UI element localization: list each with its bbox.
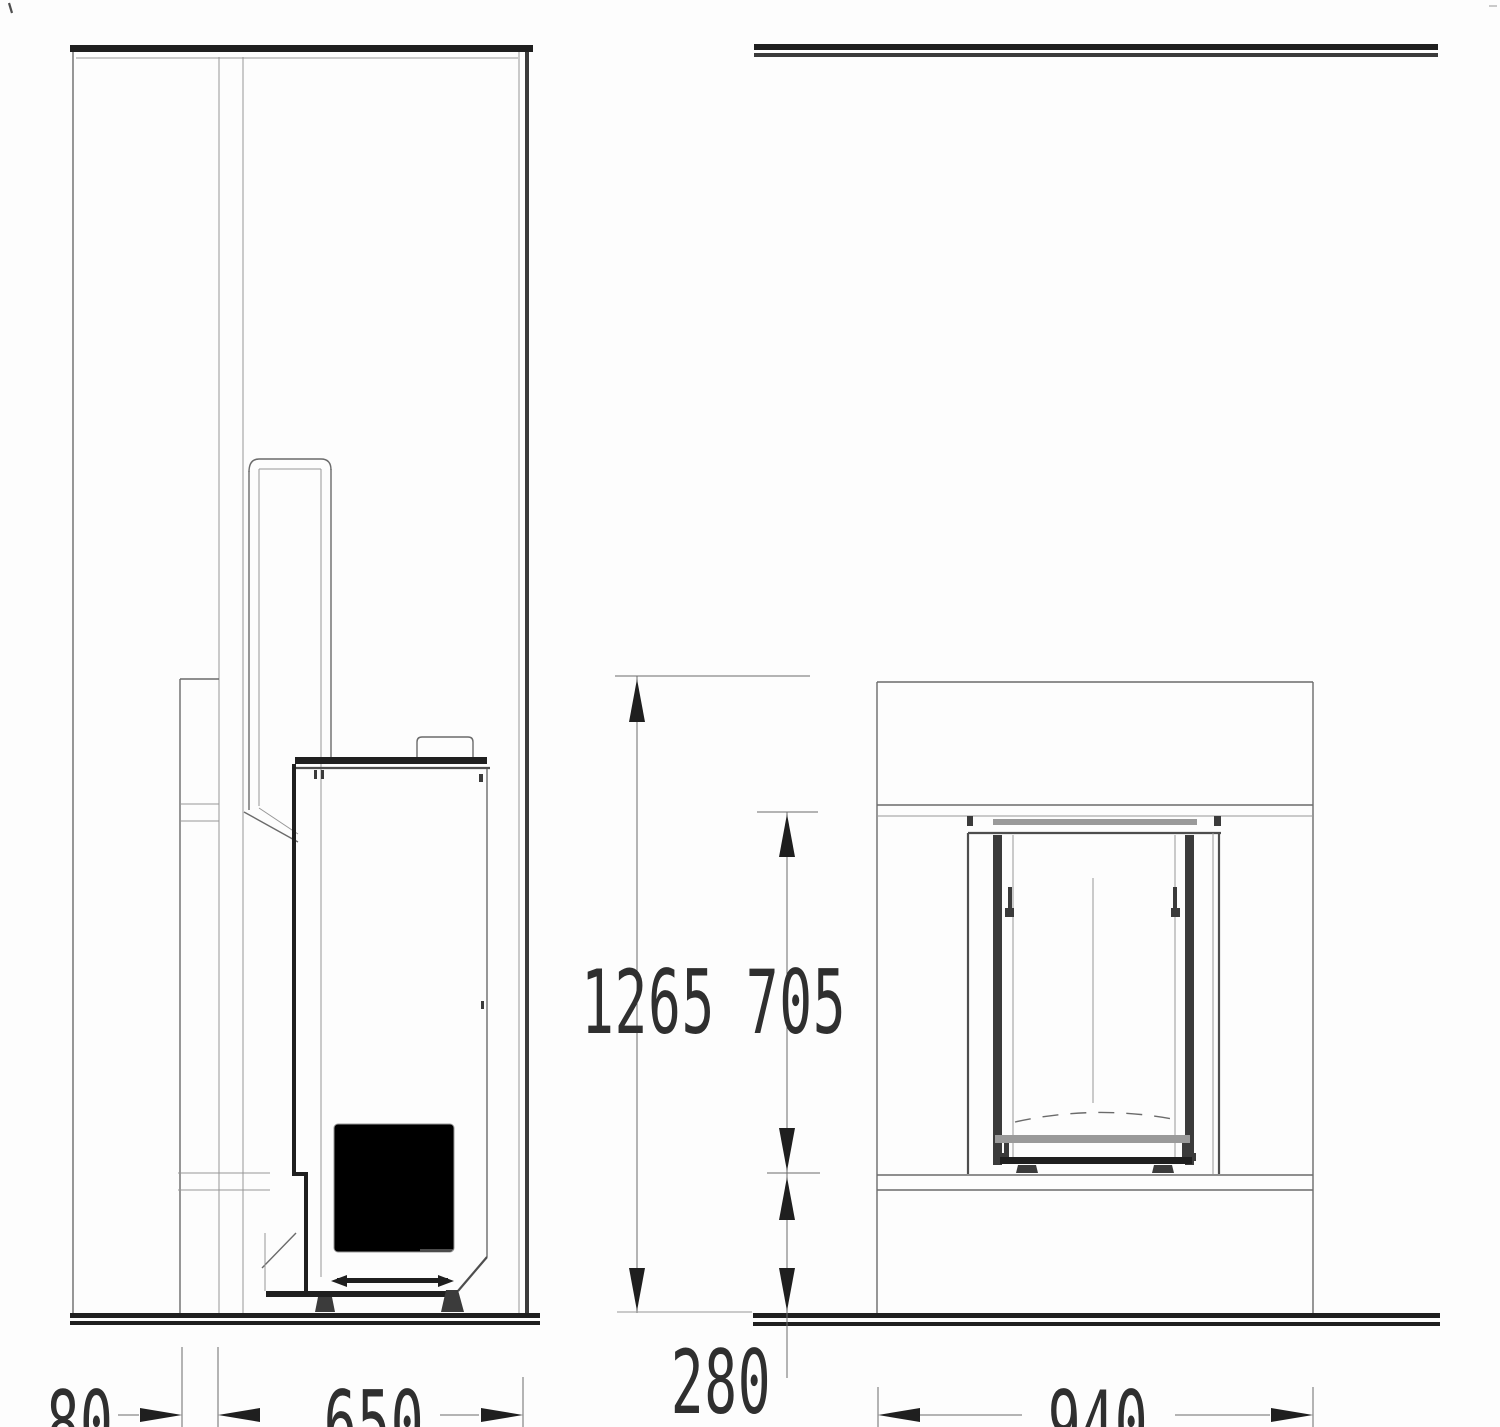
hood-band: [877, 805, 1313, 816]
firebox-window: [967, 816, 1221, 1174]
drawing-canvas: 1265 705 280 80 650 940: [0, 0, 1500, 1427]
technical-drawing: [0, 0, 1500, 1427]
dim-label-total-height: 1265: [581, 959, 715, 1047]
side-view: [70, 52, 540, 1325]
dim-label-depth: 650: [324, 1380, 424, 1427]
log-retainer-arc: [1015, 1112, 1178, 1122]
dim-label-plinth-height: 280: [671, 1339, 771, 1427]
front-view: [753, 682, 1440, 1326]
ceiling-line-left: [70, 45, 533, 58]
dim-label-opening-height: 705: [746, 959, 846, 1047]
floor-line-left: [70, 1313, 540, 1325]
dimension-rear-clearance: [118, 1347, 260, 1427]
firebox-interior-section: [262, 1124, 454, 1297]
dim-label-front-width: 940: [1048, 1380, 1148, 1427]
firebox-base: [995, 1135, 1192, 1173]
front-frame: [877, 682, 1313, 1313]
wall-panel-lines: [219, 57, 243, 1313]
hearth-band: [877, 1175, 1313, 1190]
front-chimney-breast-wall: [519, 52, 529, 1313]
stray-mark: [9, 3, 1497, 13]
flue-duct: [244, 459, 331, 1277]
dimension-depth: [440, 1377, 523, 1427]
ceiling-line-right: [754, 44, 1438, 57]
flue-collar: [417, 737, 473, 757]
floor-line-right: [753, 1313, 1440, 1326]
dim-label-rear-clearance: 80: [47, 1380, 114, 1427]
rear-insulation-panel: [178, 679, 270, 1313]
